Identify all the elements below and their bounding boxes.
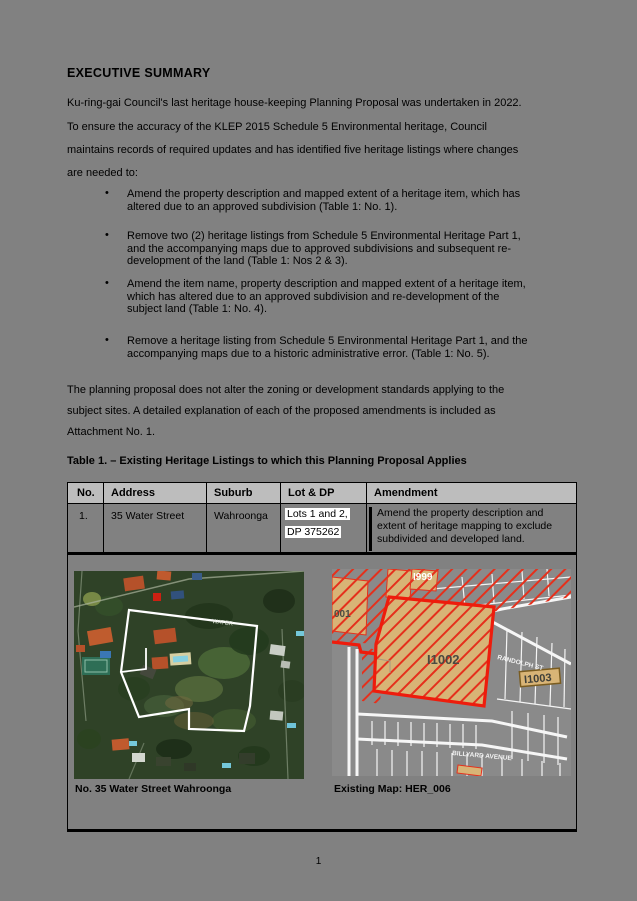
- table-bottom-border: [68, 829, 576, 832]
- tracked-insert-text: Lots 1 and 2,: [285, 508, 350, 520]
- bullet-line: accompanying maps due to a historic admi…: [127, 348, 490, 361]
- tracked-change-bar: [369, 507, 372, 551]
- page-title: EXECUTIVE SUMMARY: [67, 66, 211, 80]
- paragraph-line: subject sites. A detailed explanation of…: [67, 404, 496, 418]
- heritage-map-svg: I1003 I999 001 I1002 RANDOLPH ST BILLYAR…: [332, 569, 571, 776]
- paragraph-line: To ensure the accuracy of the KLEP 2015 …: [67, 120, 487, 134]
- row-divider: [68, 552, 576, 555]
- cell-lot-dp-line: DP 375262: [285, 526, 341, 538]
- bullet-marker: •: [105, 334, 109, 346]
- paragraph-line: maintains records of required updates an…: [67, 143, 518, 157]
- heritage-map: I1003 I999 001 I1002 RANDOLPH ST BILLYAR…: [332, 569, 571, 776]
- column-divider: [280, 482, 281, 552]
- bullet-marker: •: [105, 277, 109, 289]
- caption-aerial: No. 35 Water Street Wahroonga: [75, 783, 231, 795]
- cell-lot-dp-line: Lots 1 and 2,: [285, 508, 350, 520]
- page-number: 1: [0, 856, 637, 867]
- paragraph-line: The planning proposal does not alter the…: [67, 383, 504, 397]
- bullet-line: Remove two (2) heritage listings from Sc…: [127, 230, 521, 243]
- map-label-I1002: I1002: [427, 652, 460, 667]
- paragraph-line: Ku-ring-gai Council's last heritage hous…: [67, 96, 522, 110]
- bullet-line: development of the land (Table 1: Nos 2 …: [127, 255, 348, 268]
- map-label-I999: I999: [413, 572, 433, 583]
- caption-map: Existing Map: HER_006: [334, 783, 451, 795]
- column-divider: [103, 482, 104, 552]
- table-title: Table 1. – Existing Heritage Listings to…: [67, 455, 467, 467]
- table-header-cell: No.: [77, 487, 95, 499]
- bullet-line: Amend the property description and mappe…: [127, 188, 520, 201]
- cell-no: 1.: [79, 510, 88, 522]
- cell-address: 35 Water Street: [111, 510, 184, 522]
- map-label-I1003: I1003: [524, 672, 552, 686]
- paragraph-line: are needed to:: [67, 166, 138, 180]
- bullet-line: which has altered due to an approved sub…: [127, 291, 499, 304]
- cell-suburb: Wahroonga: [214, 510, 268, 522]
- bullet-marker: •: [105, 187, 109, 199]
- table-header-cell: Suburb: [214, 487, 253, 499]
- paragraph-line: Attachment No. 1.: [67, 425, 155, 439]
- bullet-line: and the accompanying maps due to approve…: [127, 243, 511, 256]
- cell-amendment: Amend the property description and exten…: [377, 507, 574, 546]
- table-header-cell: Lot & DP: [288, 487, 334, 499]
- heritage-table: No. Address Suburb Lot & DP Amendment 1.…: [67, 482, 577, 832]
- column-divider: [206, 482, 207, 552]
- bullet-line: Amend the item name, property descriptio…: [127, 278, 526, 291]
- aerial-photo: WATER: [74, 571, 304, 779]
- table-header-cell: Amendment: [374, 487, 438, 499]
- aerial-photo-svg: WATER: [74, 571, 304, 779]
- tracked-insert-text: DP 375262: [285, 526, 341, 538]
- bullet-marker: •: [105, 229, 109, 241]
- table-header-cell: Address: [111, 487, 155, 499]
- bullet-line: altered due to an approved subdivision (…: [127, 201, 397, 214]
- bullet-line: Remove a heritage listing from Schedule …: [127, 335, 528, 348]
- bullet-line: subject land (Table 1: No. 4).: [127, 303, 267, 316]
- map-label-I1001: 001: [334, 609, 351, 620]
- column-divider: [366, 482, 367, 552]
- document-page: { "doc": { "heading": "EXECUTIVE SUMMARY…: [0, 0, 637, 901]
